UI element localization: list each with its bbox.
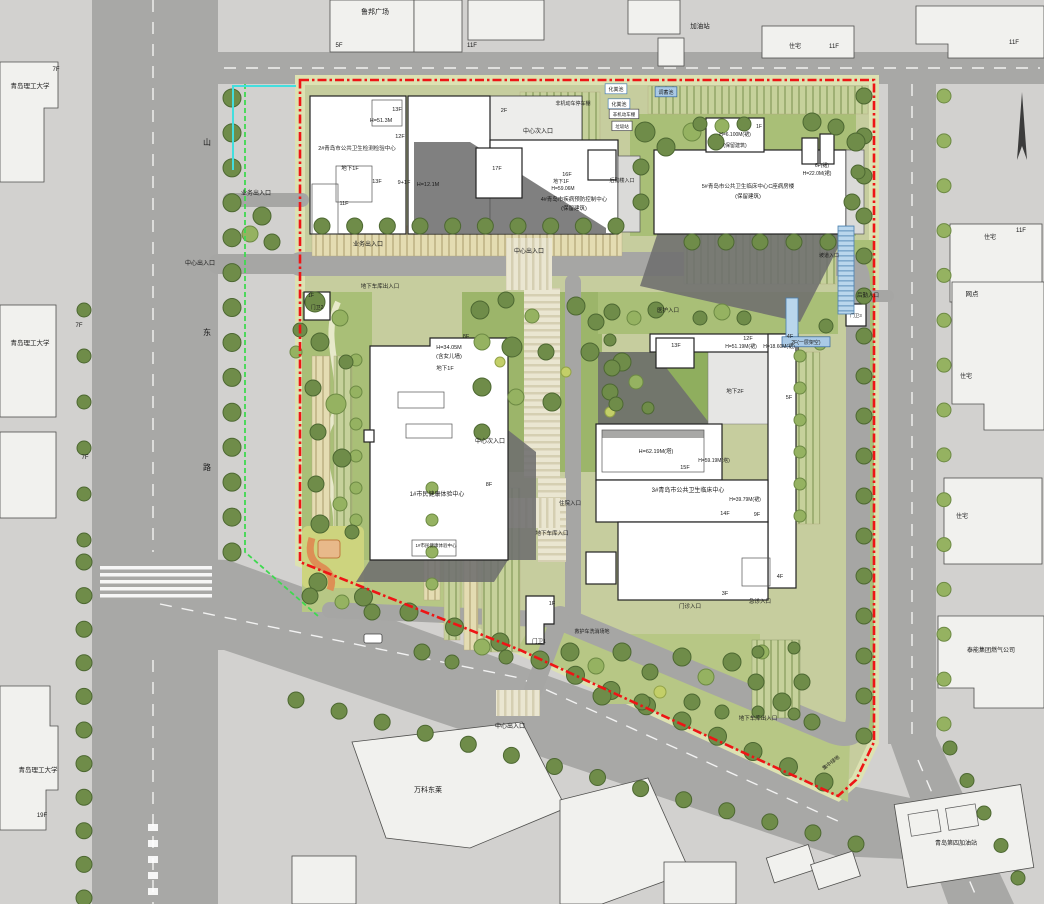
surroundings-label: 青岛理工大学 <box>11 338 51 347</box>
tree-icon <box>613 643 631 661</box>
building-3-label: 15F <box>680 465 690 471</box>
entrances-label: 住院入口 <box>559 499 581 507</box>
tree-icon <box>723 653 741 671</box>
tree-icon <box>77 349 91 363</box>
tree-icon <box>333 449 351 467</box>
building-3-label: 5F <box>786 395 793 401</box>
building-3-label: 9F <box>754 512 761 518</box>
entrances-label: 中心次入口 <box>475 437 505 445</box>
building-2-4-label: (保留建筑) <box>561 204 587 212</box>
tree-icon <box>311 333 329 351</box>
tree-icon <box>819 319 833 333</box>
tree-icon <box>633 194 649 210</box>
tree-icon <box>414 644 430 660</box>
tree-icon <box>856 368 872 384</box>
tree-icon <box>960 774 974 788</box>
tree-icon <box>937 448 951 462</box>
tree-icon <box>937 627 951 641</box>
entrances-label: 后勤入口 <box>857 291 879 299</box>
tree-icon <box>937 134 951 148</box>
surroundings-label: 7F <box>81 455 88 461</box>
building-2-4-label: 4#青岛市疾病预防控制中心 <box>541 195 608 203</box>
tree-icon <box>308 476 324 492</box>
tree-icon <box>76 655 92 671</box>
tree-icon <box>604 304 620 320</box>
tree-icon <box>593 687 611 705</box>
context-building <box>944 478 1042 564</box>
entrances-label: 门诊入口 <box>679 602 701 610</box>
tree-icon <box>1011 871 1025 885</box>
tree-icon <box>856 328 872 344</box>
surroundings-label: 11F <box>829 44 839 50</box>
building-1-label: H=34.05M <box>436 345 462 351</box>
surroundings-label: 11F <box>1016 228 1026 234</box>
tree-icon <box>847 133 865 151</box>
tree-icon <box>310 424 326 440</box>
tree-icon <box>538 344 554 360</box>
tree-icon <box>794 382 806 394</box>
tree-icon <box>718 234 734 250</box>
surroundings-label: 住宅 <box>956 512 968 520</box>
tree-icon <box>635 122 655 142</box>
facilities-label: 1F <box>308 293 314 299</box>
tree-icon <box>794 446 806 458</box>
tree-icon <box>76 756 92 772</box>
tree-icon <box>604 334 616 346</box>
tree-icon <box>379 218 395 234</box>
building-2-4-label: H=12.1M <box>417 182 440 188</box>
surroundings-label: 住宅 <box>960 372 972 380</box>
tree-icon <box>503 747 519 763</box>
context-building <box>762 26 854 58</box>
tree-icon <box>590 770 606 786</box>
tree-icon <box>77 395 91 409</box>
tree-icon <box>311 515 329 533</box>
building-2-4-label: 9+1F <box>398 180 411 186</box>
tree-icon <box>350 418 362 430</box>
tree-icon <box>223 333 241 351</box>
tree-icon <box>333 497 347 511</box>
tree-icon <box>673 648 691 666</box>
tree-icon <box>581 343 599 361</box>
tree-icon <box>684 694 700 710</box>
building-2-4-label: 11F <box>339 201 349 207</box>
tree-icon <box>937 313 951 327</box>
tree-icon <box>851 165 865 179</box>
tree-icon <box>633 781 649 797</box>
tree-icon <box>445 655 459 669</box>
context-building <box>414 0 462 52</box>
tree-icon <box>546 758 562 774</box>
tree-icon <box>937 672 951 686</box>
tree-icon <box>223 264 241 282</box>
tree-icon <box>937 268 951 282</box>
tree-icon <box>76 588 92 604</box>
tree-icon <box>253 207 271 225</box>
tree-icon <box>748 674 764 690</box>
tree-icon <box>856 88 872 104</box>
entrances-label: 医护入口 <box>657 306 679 314</box>
tree-icon <box>508 389 524 405</box>
tree-icon <box>473 378 491 396</box>
building-1-label: 8F <box>463 334 470 340</box>
tree-icon <box>499 650 513 664</box>
tree-icon <box>752 646 764 658</box>
tree-icon <box>856 568 872 584</box>
tree-icon <box>773 693 791 711</box>
tree-icon <box>627 311 641 325</box>
site-plan-map: 鲁邦广场5F11F加油站住宅11F11F青岛理工大学7F青岛理工大学7F7F青岛… <box>0 0 1044 904</box>
building-5-label: H=6.100M(裙) <box>719 131 751 138</box>
tree-icon <box>794 414 806 426</box>
building-3-label: H=39.79M(裙) <box>729 496 761 503</box>
building-3-label: H=59.19M(塔) <box>698 457 730 464</box>
entrances-label: 中心出入口 <box>514 247 544 255</box>
tree-icon <box>737 311 751 325</box>
tree-icon <box>937 179 951 193</box>
context-building <box>628 0 680 34</box>
tree-icon <box>642 664 658 680</box>
tree-icon <box>788 642 800 654</box>
building-2-4-label: 地下1F <box>341 164 359 172</box>
tree-icon <box>794 478 806 490</box>
tree-icon <box>314 218 330 234</box>
context-building <box>0 305 56 417</box>
tree-icon <box>76 823 92 839</box>
building-2-4-label: 13F <box>392 107 402 113</box>
ramp-emergency <box>838 226 854 314</box>
facilities-label: 非机动车棚 <box>613 111 636 118</box>
building-5-label: 5#青岛市公共卫生临床中心C座病房楼 <box>702 182 795 190</box>
tree-icon <box>355 588 373 606</box>
tree-icon <box>820 234 836 250</box>
surroundings-label: 东 <box>203 327 211 337</box>
tree-icon <box>332 310 348 326</box>
facilities-label: 2F(一层架空) <box>791 339 821 346</box>
tree-icon <box>794 510 806 522</box>
tree-icon <box>364 604 380 620</box>
tree-icon <box>937 403 951 417</box>
tree-icon <box>345 525 359 539</box>
tree-icon <box>693 311 707 325</box>
building-1-label: (含女儿墙) <box>436 352 462 360</box>
tree-icon <box>426 514 438 526</box>
building-3-label: 12F <box>743 336 753 342</box>
tree-icon <box>805 825 821 841</box>
tree-icon <box>937 358 951 372</box>
tree-icon <box>937 224 951 238</box>
tree-icon <box>77 487 91 501</box>
building-3-label: 地下2F <box>726 387 744 395</box>
building-1-label: 1#市民健康体验中心 <box>415 542 457 549</box>
tree-icon <box>477 218 493 234</box>
building-2-4-label: 12F <box>395 134 405 140</box>
tree-icon <box>856 488 872 504</box>
tree-icon <box>804 714 820 730</box>
surroundings-label: 5F <box>335 43 342 49</box>
tree-icon <box>684 234 700 250</box>
surroundings-label: 路 <box>203 462 211 472</box>
tree-icon <box>223 368 241 386</box>
tree-icon <box>223 194 241 212</box>
building-4-tower-16f <box>588 150 616 180</box>
entrances-label: 地下车库出入口 <box>739 714 778 722</box>
building-5-label: 1F <box>756 124 762 130</box>
tree-icon <box>76 890 92 904</box>
tree-icon <box>543 393 561 411</box>
tree-icon <box>937 493 951 507</box>
tree-icon <box>693 117 707 131</box>
building-4-tower-17f <box>476 148 522 198</box>
tree-icon <box>223 473 241 491</box>
tree-icon <box>412 218 428 234</box>
entrances-label: 地下车库入口 <box>535 529 568 537</box>
building-2-4-label: 17F <box>492 166 502 172</box>
tree-icon <box>633 159 649 175</box>
building-3-label: 3F <box>722 591 729 597</box>
tree-icon <box>588 314 604 330</box>
tree-icon <box>657 138 675 156</box>
building-3-label: H=62.19M(塔) <box>639 447 674 455</box>
building-5-annex <box>802 138 818 164</box>
entrances-label: 地下车库出入口 <box>361 282 400 290</box>
tree-icon <box>543 218 559 234</box>
surroundings-label: 19F <box>37 813 48 819</box>
tree-icon <box>223 229 241 247</box>
tree-icon <box>856 248 872 264</box>
tree-icon <box>788 708 800 720</box>
tree-icon <box>698 669 714 685</box>
tree-icon <box>76 554 92 570</box>
building-1-label: 8F <box>486 482 493 488</box>
tree-icon <box>848 836 864 852</box>
tree-icon <box>856 728 872 744</box>
facilities-label: 化粪池 <box>608 86 623 93</box>
tree-icon <box>676 792 692 808</box>
tree-icon <box>339 355 353 369</box>
context-building <box>658 38 684 66</box>
context-building <box>0 432 56 518</box>
tree-icon <box>502 337 522 357</box>
tree-icon <box>794 674 810 690</box>
tree-icon <box>350 514 362 526</box>
tree-icon <box>943 741 957 755</box>
tree-icon <box>76 621 92 637</box>
surroundings-label: 住宅 <box>984 233 996 241</box>
entrances-label: 救护车洗消场地 <box>574 628 609 635</box>
building-5-label: 6F(裙) <box>815 162 830 169</box>
tree-icon <box>76 856 92 872</box>
surroundings-label: 7F <box>52 67 59 73</box>
building-1-label: 1#市民健康体验中心 <box>410 490 465 498</box>
tree-icon <box>709 727 727 745</box>
tree-icon <box>417 725 433 741</box>
facilities-label: 化粪池 <box>611 101 626 108</box>
building-3-label: H=51.19M(裙) <box>725 343 757 350</box>
tree-icon <box>223 543 241 561</box>
tree-icon <box>561 367 571 377</box>
entrances-label: 急诊入口 <box>749 597 771 605</box>
tree-icon <box>844 194 860 210</box>
facilities-label: 垃圾站 <box>615 123 629 130</box>
context-building <box>468 0 544 40</box>
surroundings-label: 青岛第四加油站 <box>935 839 977 847</box>
surroundings-label: 11F <box>1009 40 1019 46</box>
tree-icon <box>510 218 526 234</box>
entrances-label: 中心出入口 <box>185 259 215 267</box>
tree-icon <box>994 839 1008 853</box>
tree-icon <box>77 533 91 547</box>
tree-icon <box>264 234 280 250</box>
tree-icon <box>474 334 490 350</box>
tree-icon <box>588 658 604 674</box>
facilities-label: 门卫3 <box>850 312 862 319</box>
tree-icon <box>714 304 730 320</box>
tree-icon <box>856 688 872 704</box>
building-2-4-label: 2#青岛市公共卫生检测检验中心 <box>318 144 396 152</box>
tree-icon <box>474 424 490 440</box>
building-2-4-label: 13F <box>372 179 382 185</box>
building-3-label: 3#青岛市公共卫生临床中心 <box>652 486 725 494</box>
tree-icon <box>629 375 643 389</box>
context-building <box>292 856 356 904</box>
tree-icon <box>856 408 872 424</box>
surroundings-label: 11F <box>467 43 477 49</box>
building-1-label: 地下1F <box>436 364 454 372</box>
building-3-label: H=18.60M(裙) <box>763 343 795 350</box>
tree-icon <box>828 119 844 135</box>
tree-icon <box>719 803 735 819</box>
entrances-label: 业务出入口 <box>241 189 271 197</box>
entrances-label: 坡道入口 <box>819 252 839 259</box>
tree-icon <box>856 528 872 544</box>
tree-icon <box>786 234 802 250</box>
tree-icon <box>803 113 821 131</box>
building-3-label: 4F <box>787 334 794 340</box>
tree-icon <box>752 234 768 250</box>
building-2-4-label: 16F <box>562 172 572 178</box>
context-building <box>330 0 414 52</box>
building-3-label: 13F <box>671 343 681 349</box>
tree-icon <box>762 814 778 830</box>
facilities-label: 门卫2 <box>311 304 324 311</box>
tree-icon <box>350 482 362 494</box>
tree-icon <box>76 688 92 704</box>
tree-icon <box>977 806 991 820</box>
tree-icon <box>561 643 579 661</box>
building-5-label: H=22.0M(裙) <box>803 170 832 177</box>
tree-icon <box>426 578 438 590</box>
tree-icon <box>609 397 623 411</box>
tree-icon <box>223 438 241 456</box>
tree-icon <box>856 608 872 624</box>
tree-icon <box>305 380 321 396</box>
tree-icon <box>856 208 872 224</box>
tree-icon <box>495 357 505 367</box>
tree-icon <box>350 386 362 398</box>
building-5-annex <box>820 134 834 164</box>
tree-icon <box>223 508 241 526</box>
tree-icon <box>491 633 509 651</box>
facilities-label: 门卫1 <box>532 637 546 645</box>
tree-icon <box>350 450 362 462</box>
tree-icon <box>654 686 666 698</box>
tree-icon <box>223 403 241 421</box>
tree-icon <box>737 117 751 131</box>
tree-icon <box>302 588 318 604</box>
tree-icon <box>567 297 585 315</box>
tree-icon <box>77 303 91 317</box>
tree-icon <box>76 722 92 738</box>
surroundings-label: 加油站 <box>690 21 710 30</box>
tree-icon <box>575 218 591 234</box>
tree-icon <box>525 309 539 323</box>
building-2-4-label: H=59.06M <box>551 186 574 192</box>
tree-icon <box>642 402 654 414</box>
tree-icon <box>715 705 729 719</box>
road-west <box>92 0 218 904</box>
tree-icon <box>856 448 872 464</box>
tree-icon <box>474 639 490 655</box>
facilities-label: 非机动车停车棚 <box>555 100 590 107</box>
tree-icon <box>288 692 304 708</box>
building-3-label: 14F <box>720 511 730 517</box>
tree-icon <box>794 350 806 362</box>
tree-icon <box>937 717 951 731</box>
surroundings-label: 住宅 <box>789 42 801 50</box>
surroundings-label: 7F <box>75 323 82 329</box>
tree-icon <box>715 119 729 133</box>
bus-shape <box>364 634 382 643</box>
building-2-4-label: 地下1F <box>553 178 569 185</box>
facilities-label: 1F <box>549 601 556 607</box>
building-2-4-label: 2F <box>501 108 508 114</box>
entrances-label: 业务出入口 <box>353 240 383 248</box>
tree-icon <box>856 648 872 664</box>
tree-icon <box>498 292 514 308</box>
tree-icon <box>76 789 92 805</box>
surroundings-label: 泰能集团燃气公司 <box>967 646 1015 654</box>
entrances-label: 中心出入口 <box>495 722 525 730</box>
tree-icon <box>608 218 624 234</box>
tree-icon <box>937 538 951 552</box>
tree-icon <box>374 714 390 730</box>
tree-icon <box>937 89 951 103</box>
tree-icon <box>937 582 951 596</box>
tree-icon <box>567 666 585 684</box>
tree-icon <box>445 218 461 234</box>
building-5-label: (保留建筑) <box>723 142 747 149</box>
entrances-label: 中心次入口 <box>523 127 553 135</box>
tree-icon <box>223 299 241 317</box>
tree-icon <box>331 703 347 719</box>
tree-icon <box>326 394 346 414</box>
surroundings-label: 青岛理工大学 <box>11 81 51 90</box>
entrances-label: 后勤楼入口 <box>609 177 634 184</box>
tree-icon <box>347 218 363 234</box>
tree-icon <box>780 758 798 776</box>
building-2 <box>310 96 406 234</box>
surroundings-label: 青岛理工大学 <box>19 765 59 774</box>
building-3-label: 4F <box>777 574 784 580</box>
building-5-label: (保留建筑) <box>735 192 761 200</box>
surroundings-label: 鲁邦广场 <box>361 7 389 16</box>
tree-icon <box>460 736 476 752</box>
tree-icon <box>335 595 349 609</box>
tree-icon <box>471 301 489 319</box>
site-plan-canvas: 鲁邦广场5F11F加油站住宅11F11F青岛理工大学7F青岛理工大学7F7F青岛… <box>0 0 1044 904</box>
surroundings-label: 万科东莱 <box>414 785 442 794</box>
